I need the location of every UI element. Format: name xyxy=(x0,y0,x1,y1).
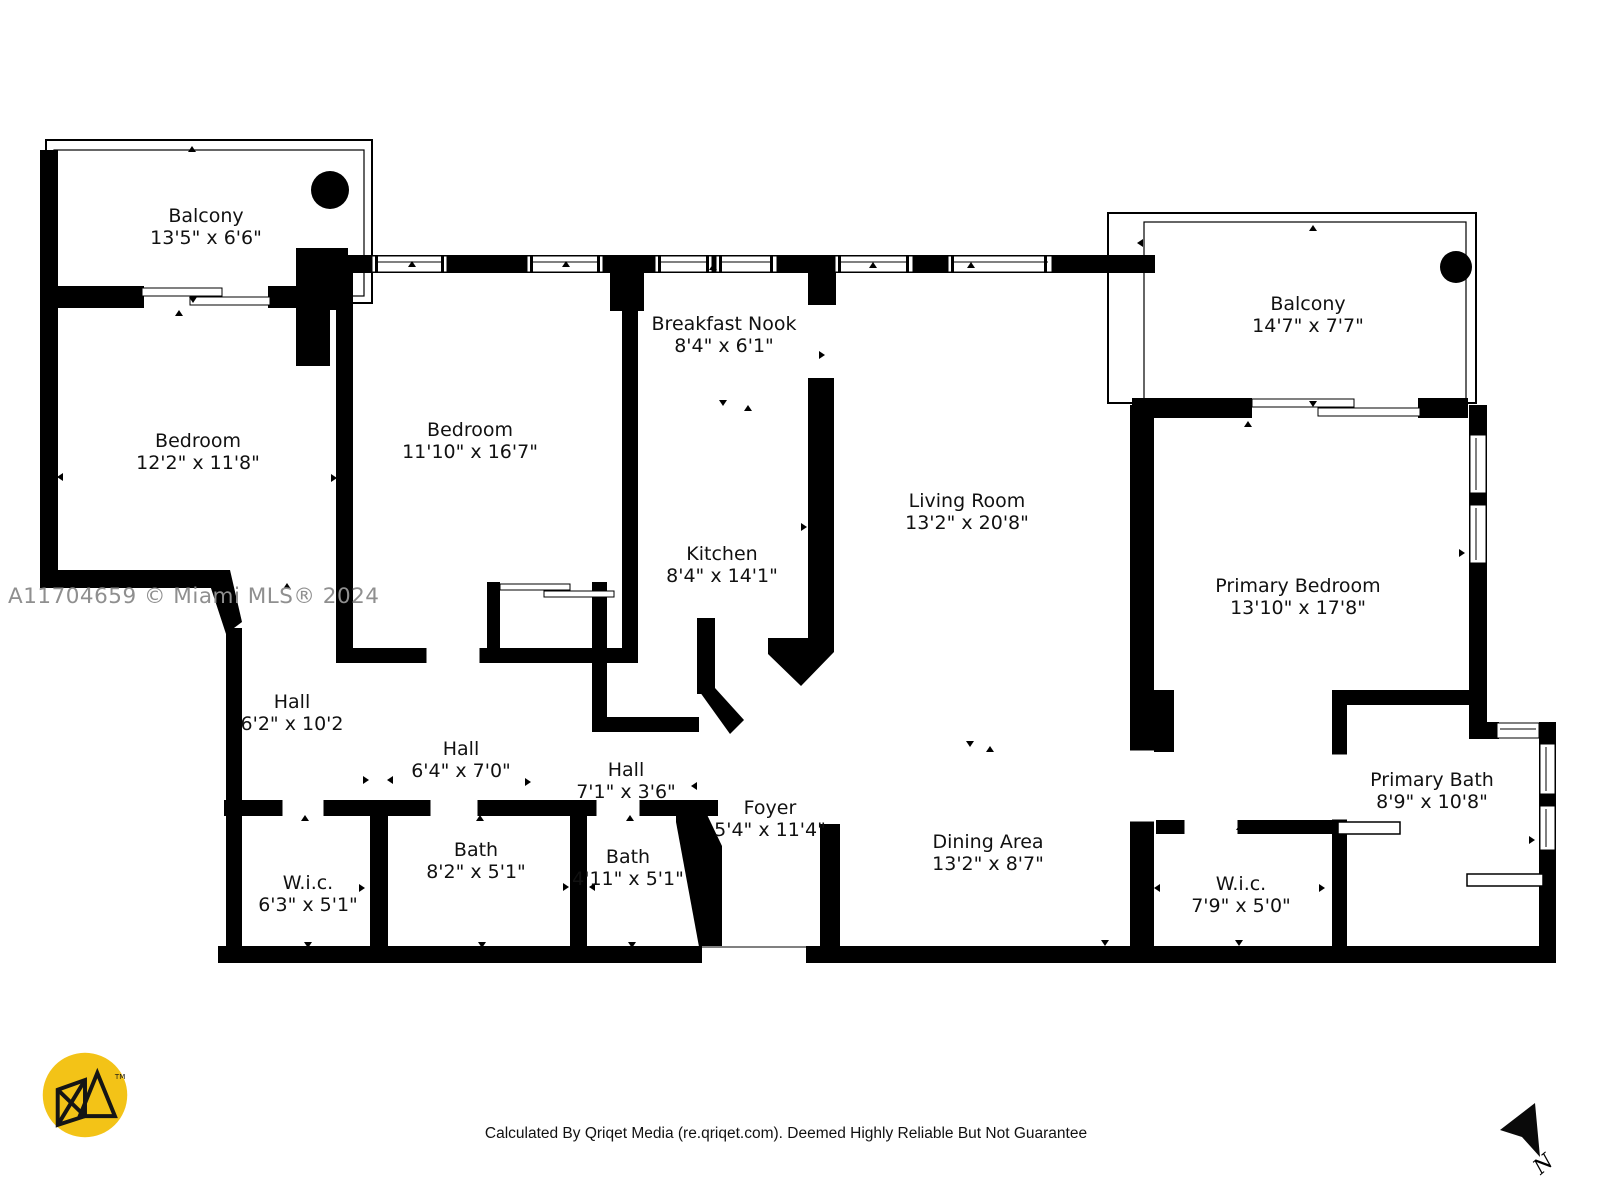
door-marker-icon xyxy=(476,815,484,821)
room-name: W.i.c. xyxy=(258,872,358,894)
door-marker-icon xyxy=(626,815,634,821)
door-marker-icon xyxy=(625,523,631,531)
door-marker-icon xyxy=(189,297,197,303)
room-dims: 6'4" x 7'0" xyxy=(411,760,511,782)
room-dims: 8'2" x 5'1" xyxy=(426,861,526,883)
door-marker-icon xyxy=(229,883,235,891)
room-dims: 13'10" x 17'8" xyxy=(1215,597,1380,619)
room-dims: 14'7" x 7'7" xyxy=(1252,315,1364,337)
room-name: W.i.c. xyxy=(1191,873,1291,895)
door-marker-icon xyxy=(1235,940,1243,946)
room-name: Breakfast Nook xyxy=(652,313,797,335)
door-marker-icon xyxy=(1244,421,1252,427)
room-label-bedroom-middle: Bedroom11'10" x 16'7" xyxy=(402,419,538,463)
door-marker-icon xyxy=(1334,836,1340,844)
door-marker-icon xyxy=(719,400,727,406)
room-label-hall-3: Hall7'1" x 3'6" xyxy=(576,759,676,803)
room-dims: 12'2" x 11'8" xyxy=(136,452,260,474)
room-label-dining-area: Dining Area13'2" x 8'7" xyxy=(932,831,1044,875)
room-dims: 13'5" x 6'6" xyxy=(150,227,262,249)
room-name: Hall xyxy=(241,691,344,713)
door-marker-icon xyxy=(1236,824,1244,830)
logo-tm: TM xyxy=(114,1072,125,1081)
door-marker-icon xyxy=(709,884,715,892)
door-marker-icon xyxy=(1309,225,1317,231)
door-marker-icon xyxy=(525,778,531,786)
room-dims: 7'9" x 5'0" xyxy=(1191,895,1291,917)
room-name: Primary Bedroom xyxy=(1215,575,1380,597)
door-marker-icon xyxy=(967,262,975,268)
room-label-breakfast-nook: Breakfast Nook8'4" x 6'1" xyxy=(652,313,797,357)
room-name: Bedroom xyxy=(402,419,538,441)
door-marker-icon xyxy=(709,264,717,270)
room-dims: 7'1" x 3'6" xyxy=(576,781,676,803)
room-label-foyer: Foyer5'4" x 11'4" xyxy=(714,797,826,841)
room-label-bath-2: Bath4'11" x 5'1" xyxy=(572,846,684,890)
room-name: Balcony xyxy=(150,205,262,227)
footer-disclaimer: Calculated By Qriqet Media (re.qriqet.co… xyxy=(0,1125,1572,1143)
room-label-hall-2: Hall6'4" x 7'0" xyxy=(411,738,511,782)
door-marker-icon xyxy=(1137,239,1143,247)
door-marker-icon xyxy=(387,776,393,784)
room-dims: 4'11" x 5'1" xyxy=(572,868,684,890)
room-name: Living Room xyxy=(905,490,1029,512)
door-marker-icon xyxy=(188,146,196,152)
walls xyxy=(40,150,1556,963)
door-marker-icon xyxy=(1529,836,1535,844)
room-name: Foyer xyxy=(714,797,826,819)
room-name: Kitchen xyxy=(666,543,778,565)
door-marker-icon xyxy=(628,942,636,948)
door-marker-icon xyxy=(562,261,570,267)
room-label-hall-1: Hall6'2" x 10'2 xyxy=(241,691,344,735)
room-label-balcony-right: Balcony14'7" x 7'7" xyxy=(1252,293,1364,337)
door-marker-icon xyxy=(359,884,365,892)
door-marker-icon xyxy=(175,310,183,316)
door-marker-icon xyxy=(1459,549,1465,557)
room-dims: 13'2" x 8'7" xyxy=(932,853,1044,875)
door-marker-icon xyxy=(301,815,309,821)
room-name: Hall xyxy=(411,738,511,760)
door-marker-icon xyxy=(1319,884,1325,892)
door-marker-icon xyxy=(304,942,312,948)
room-name: Bath xyxy=(426,839,526,861)
door-marker-icon xyxy=(478,942,486,948)
door-marker-icon xyxy=(801,523,807,531)
door-marker-icon xyxy=(563,883,569,891)
door-marker-icon xyxy=(1145,548,1151,556)
room-dims: 8'4" x 14'1" xyxy=(666,565,778,587)
door-marker-icon xyxy=(691,782,697,790)
room-dims: 5'4" x 11'4" xyxy=(714,819,826,841)
room-name: Bedroom xyxy=(136,430,260,452)
room-dims: 13'2" x 20'8" xyxy=(905,512,1029,534)
room-name: Hall xyxy=(576,759,676,781)
room-label-primary-bedroom: Primary Bedroom13'10" x 17'8" xyxy=(1215,575,1380,619)
room-name: Dining Area xyxy=(932,831,1044,853)
qriqet-logo-icon: TM xyxy=(41,1051,129,1139)
door-marker-icon xyxy=(1101,940,1109,946)
room-dims: 11'10" x 16'7" xyxy=(402,441,538,463)
door-marker-icon xyxy=(363,776,369,784)
door-marker-icon xyxy=(1154,884,1160,892)
door-marker-icon xyxy=(1309,401,1317,407)
room-name: Balcony xyxy=(1252,293,1364,315)
room-label-kitchen: Kitchen8'4" x 14'1" xyxy=(666,543,778,587)
door-marker-icon xyxy=(869,262,877,268)
door-marker-icon xyxy=(1401,698,1409,704)
door-marker-icon xyxy=(625,352,631,360)
room-label-wic-1: W.i.c.6'3" x 5'1" xyxy=(258,872,358,916)
room-dims: 8'4" x 6'1" xyxy=(652,335,797,357)
room-dims: 6'3" x 5'1" xyxy=(258,894,358,916)
door-marker-icon xyxy=(986,746,994,752)
door-marker-icon xyxy=(966,741,974,747)
room-label-wic-2: W.i.c.7'9" x 5'0" xyxy=(1191,873,1291,917)
balcony-table-icon xyxy=(311,171,349,209)
floorplan-canvas: Balcony13'5" x 6'6"Bedroom12'2" x 11'8"B… xyxy=(0,0,1600,1200)
room-dims: 8'9" x 10'8" xyxy=(1370,791,1494,813)
room-label-balcony-left: Balcony13'5" x 6'6" xyxy=(150,205,262,249)
room-label-primary-bath: Primary Bath8'9" x 10'8" xyxy=(1370,769,1494,813)
door-marker-icon xyxy=(744,405,752,411)
room-label-bath-1: Bath8'2" x 5'1" xyxy=(426,839,526,883)
door-marker-icon xyxy=(819,351,825,359)
windows xyxy=(372,256,1555,850)
mls-watermark: A11704659 © Miami MLS® 2024 xyxy=(8,584,379,609)
room-label-bedroom-left: Bedroom12'2" x 11'8" xyxy=(136,430,260,474)
room-name: Primary Bath xyxy=(1370,769,1494,791)
room-label-living-room: Living Room13'2" x 20'8" xyxy=(905,490,1029,534)
room-dims: 6'2" x 10'2 xyxy=(241,713,344,735)
room-name: Bath xyxy=(572,846,684,868)
bath-counters xyxy=(1338,822,1543,886)
door-marker-icon xyxy=(57,473,63,481)
door-marker-icon xyxy=(331,474,337,482)
balcony-table-icon xyxy=(1440,251,1472,283)
door-marker-icon xyxy=(408,261,416,267)
